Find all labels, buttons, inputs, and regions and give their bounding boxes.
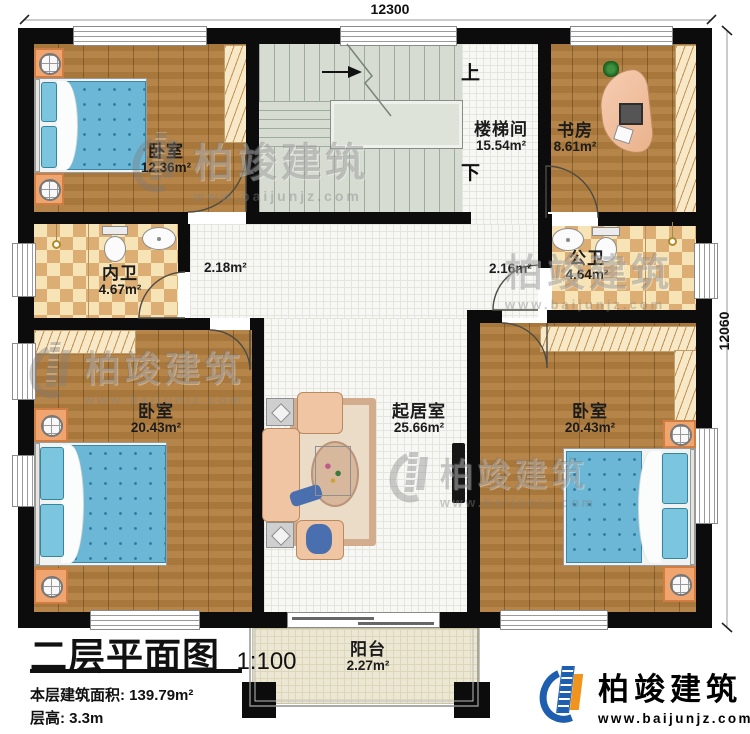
brand-url: www.baijunjz.com xyxy=(598,711,750,726)
light-pull-cord xyxy=(672,222,673,238)
toilet-bowl xyxy=(104,236,126,262)
side-table xyxy=(266,398,294,426)
balcony-pillar-left xyxy=(242,682,276,718)
tv xyxy=(452,443,465,503)
dim-tick xyxy=(722,26,732,35)
dim-tick xyxy=(722,623,732,632)
coffee-table xyxy=(315,446,351,496)
floor-height-line: 层高: 3.3m xyxy=(30,707,103,728)
plan-scale: 1:100 xyxy=(236,648,296,675)
stair-flight-side xyxy=(259,100,330,147)
room-label-bath-public: 公卫 4.64m² xyxy=(560,250,614,282)
brand-logo-icon xyxy=(540,666,588,722)
window xyxy=(570,26,673,46)
window xyxy=(12,455,36,507)
nightstand xyxy=(663,420,696,448)
stair-flight-upper xyxy=(259,44,462,101)
stairs-up-label: 上 xyxy=(461,58,480,85)
lamp-icon xyxy=(39,53,61,75)
sliding-door-leaf xyxy=(358,622,434,625)
sink xyxy=(552,228,584,251)
hall-right-area: 2.16m² xyxy=(489,261,532,276)
window xyxy=(340,26,457,46)
stair-flight-lower xyxy=(259,147,462,212)
window xyxy=(694,428,718,524)
nightstand xyxy=(34,173,64,205)
lamp-icon xyxy=(41,576,63,598)
wall-study-south xyxy=(598,212,712,226)
lamp-icon xyxy=(39,179,61,201)
light-pull-icon xyxy=(668,237,677,246)
wall-stair-west xyxy=(246,28,259,224)
stairs-down-label: 下 xyxy=(461,158,480,185)
bath-divider xyxy=(645,226,646,310)
wall-study-west xyxy=(538,28,551,212)
bed-bedroom-br xyxy=(563,448,696,566)
room-label-balcony: 阳台 2.27m² xyxy=(335,641,401,673)
wall-stair-south xyxy=(259,212,471,224)
bath-divider xyxy=(88,224,89,318)
window xyxy=(12,243,36,297)
dim-tick xyxy=(20,15,29,24)
wall-bedroom-br-north-stub xyxy=(467,310,502,323)
person-figure xyxy=(306,524,332,554)
wall-study-south-stub xyxy=(538,212,548,226)
nightstand xyxy=(663,566,696,602)
dimension-top: 12300 xyxy=(345,1,435,17)
wall-bath-inner-south xyxy=(18,318,210,330)
plant-icon xyxy=(603,61,619,77)
wall-bedroom-br-west xyxy=(467,310,480,614)
window xyxy=(500,610,608,630)
lamp-icon xyxy=(670,574,692,596)
dim-tick xyxy=(707,15,716,24)
window xyxy=(694,243,718,299)
room-label-living: 起居室 25.66m² xyxy=(383,403,455,435)
room-label-bedroom-tl: 卧室 12.36m² xyxy=(110,143,222,175)
nightstand xyxy=(34,568,68,604)
brand-logo: 柏竣建筑 www.baijunjz.com xyxy=(540,664,750,726)
wall-bath-inner-east xyxy=(178,224,190,272)
window xyxy=(12,343,36,400)
armchair xyxy=(297,392,343,434)
lamp-icon xyxy=(41,415,63,437)
toilet xyxy=(592,227,620,236)
room-label-bedroom-bl: 卧室 20.43m² xyxy=(113,403,199,435)
lamp-icon xyxy=(670,424,692,446)
light-pull-icon xyxy=(52,240,61,249)
floor-plan: 卧室 12.36m² 楼梯间 15.54m² 书房 8.61m² 内卫 4.67… xyxy=(0,0,750,734)
sofa xyxy=(262,428,300,522)
window xyxy=(73,26,207,46)
room-label-bath-inner: 内卫 4.67m² xyxy=(93,265,147,297)
sliding-door-leaf xyxy=(292,617,374,620)
wardrobe-bedroom-br xyxy=(540,326,698,352)
room-label-stairwell: 楼梯间 15.54m² xyxy=(463,121,539,153)
wall-right xyxy=(696,28,712,628)
floor-area-line: 本层建筑面积: 139.79m² xyxy=(30,684,193,705)
stair-landing xyxy=(330,100,463,149)
nightstand xyxy=(34,48,64,78)
brand-name: 柏竣建筑 xyxy=(598,664,750,709)
wall-bedroom-tl-south xyxy=(18,212,188,224)
balcony-pillar-right xyxy=(454,682,490,718)
room-label-study: 书房 8.61m² xyxy=(545,122,605,154)
light-pull-cord xyxy=(56,224,57,241)
sink xyxy=(142,227,176,250)
nightstand xyxy=(34,408,68,442)
wall-bath-public-south xyxy=(547,310,712,323)
toilet xyxy=(102,226,128,235)
bed-bedroom-bl xyxy=(34,442,167,566)
hall-left-area: 2.18m² xyxy=(204,260,247,275)
side-table xyxy=(266,522,294,548)
wardrobe-bedroom-bl xyxy=(34,330,136,354)
dimension-right: 12060 xyxy=(716,303,732,359)
wardrobe-bedroom-tl xyxy=(224,45,248,143)
computer-monitor-icon xyxy=(619,103,643,125)
room-label-bedroom-br: 卧室 20.43m² xyxy=(545,403,635,435)
title-underline xyxy=(30,669,242,673)
sliding-door xyxy=(287,612,440,628)
